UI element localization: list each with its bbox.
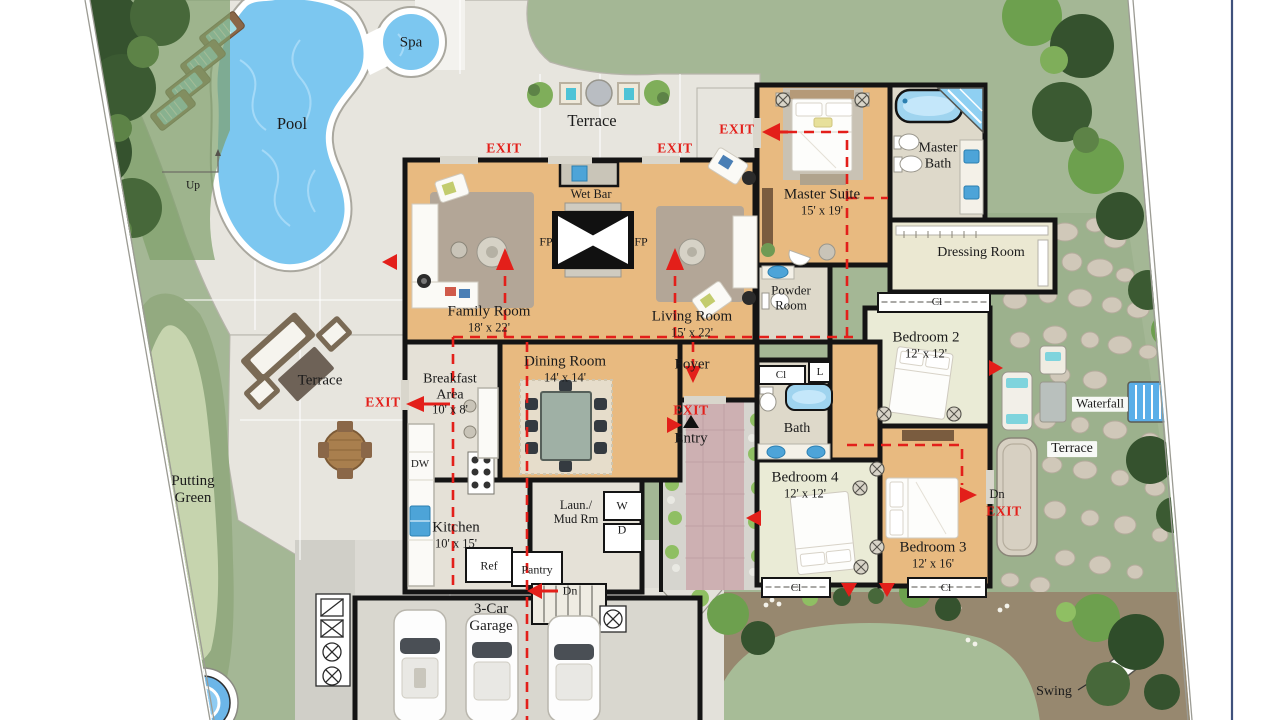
wet-bar-counter xyxy=(560,162,618,186)
cars xyxy=(394,610,600,720)
fireplace xyxy=(552,203,634,277)
floor-plan-drawing xyxy=(0,0,1280,720)
site-plan: Pool Spa Up Terrace Terrace Terrace Wate… xyxy=(0,0,1280,720)
